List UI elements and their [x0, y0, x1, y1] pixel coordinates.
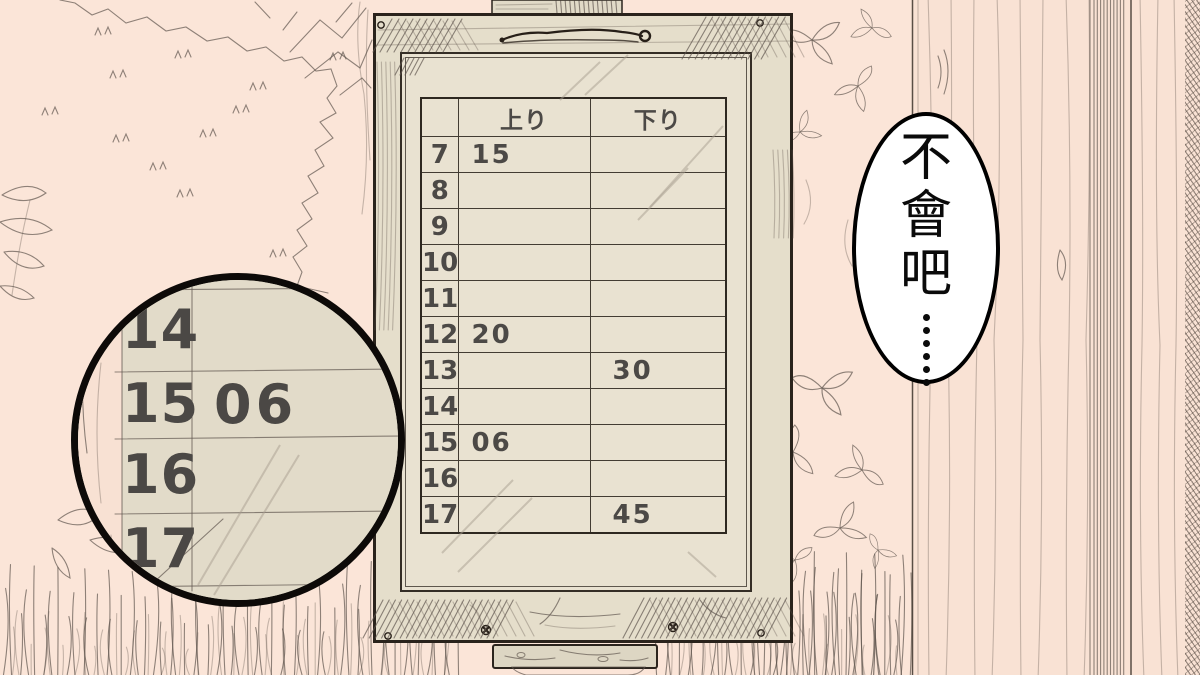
- hour-cell: 15: [421, 425, 458, 461]
- timetable-board: 上り 下り 71589101112201330141506161745: [373, 13, 793, 643]
- ellipsis-dot: [923, 353, 930, 360]
- down-cell: [590, 281, 726, 317]
- timetable-row: 16: [421, 461, 726, 497]
- up-cell: 06: [458, 425, 590, 461]
- magnified-timetable: 1415061617: [71, 273, 405, 607]
- hour-cell: 8: [421, 173, 458, 209]
- hour-cell: 12: [421, 317, 458, 353]
- ellipsis-dot: [923, 366, 930, 373]
- hour-cell: 13: [421, 353, 458, 389]
- hour-cell: 9: [421, 209, 458, 245]
- magnified-hour: 15: [122, 374, 192, 434]
- timetable-header-row: 上り 下り: [421, 98, 726, 137]
- up-cell: 20: [458, 317, 590, 353]
- up-cell: [458, 209, 590, 245]
- hour-cell: 7: [421, 137, 458, 173]
- timetable-row: 8: [421, 173, 726, 209]
- timetable-row: 11: [421, 281, 726, 317]
- hour-cell: 16: [421, 461, 458, 497]
- up-cell: [458, 389, 590, 425]
- down-cell: [590, 209, 726, 245]
- up-cell: 15: [458, 137, 590, 173]
- board-panel: 上り 下り 71589101112201330141506161745: [400, 52, 752, 592]
- ellipsis-dot: [923, 340, 930, 347]
- timetable-row: 1745: [421, 497, 726, 534]
- manga-panel: 上り 下り 71589101112201330141506161745 1415…: [0, 0, 1200, 675]
- down-cell: [590, 317, 726, 353]
- down-cell: 45: [590, 497, 726, 534]
- up-cell: [458, 245, 590, 281]
- wall-edge-hatching: [1185, 0, 1200, 675]
- down-cell: [590, 245, 726, 281]
- hour-cell: 10: [421, 245, 458, 281]
- hour-cell: 11: [421, 281, 458, 317]
- corner-cell: [421, 98, 458, 137]
- magnified-value: 06: [214, 375, 354, 435]
- timetable-row: 1506: [421, 425, 726, 461]
- speech-char: 會: [900, 188, 952, 246]
- up-cell: [458, 497, 590, 534]
- down-cell: [590, 173, 726, 209]
- hour-cell: 17: [421, 497, 458, 534]
- hour-cell: 14: [421, 389, 458, 425]
- timetable: 上り 下り 71589101112201330141506161745: [420, 97, 727, 534]
- timetable-row: 1220: [421, 317, 726, 353]
- ellipsis-dot: [923, 379, 930, 386]
- ellipsis-dot: [923, 314, 930, 321]
- timetable-row: 14: [421, 389, 726, 425]
- speech-text: 不會吧: [856, 130, 996, 386]
- down-cell: [590, 389, 726, 425]
- magnifier-circle: 1415061617: [71, 273, 405, 607]
- down-cell: [590, 137, 726, 173]
- up-cell: [458, 353, 590, 389]
- speech-bubble: 不會吧: [852, 112, 1000, 384]
- timetable-row: 9: [421, 209, 726, 245]
- magnified-hour: 16: [122, 445, 192, 505]
- timetable-row: 10: [421, 245, 726, 281]
- down-header: 下り: [590, 98, 726, 137]
- down-cell: [590, 425, 726, 461]
- down-cell: 30: [590, 353, 726, 389]
- magnified-hour: 17: [122, 519, 192, 579]
- ellipsis-dot: [923, 327, 930, 334]
- down-cell: [590, 461, 726, 497]
- up-cell: [458, 281, 590, 317]
- up-header: 上り: [458, 98, 590, 137]
- timetable-row: 715: [421, 137, 726, 173]
- speech-char: 吧: [900, 246, 952, 304]
- magnified-hour: 14: [122, 300, 192, 360]
- up-cell: [458, 461, 590, 497]
- speech-char: 不: [900, 130, 952, 188]
- timetable-row: 1330: [421, 353, 726, 389]
- up-cell: [458, 173, 590, 209]
